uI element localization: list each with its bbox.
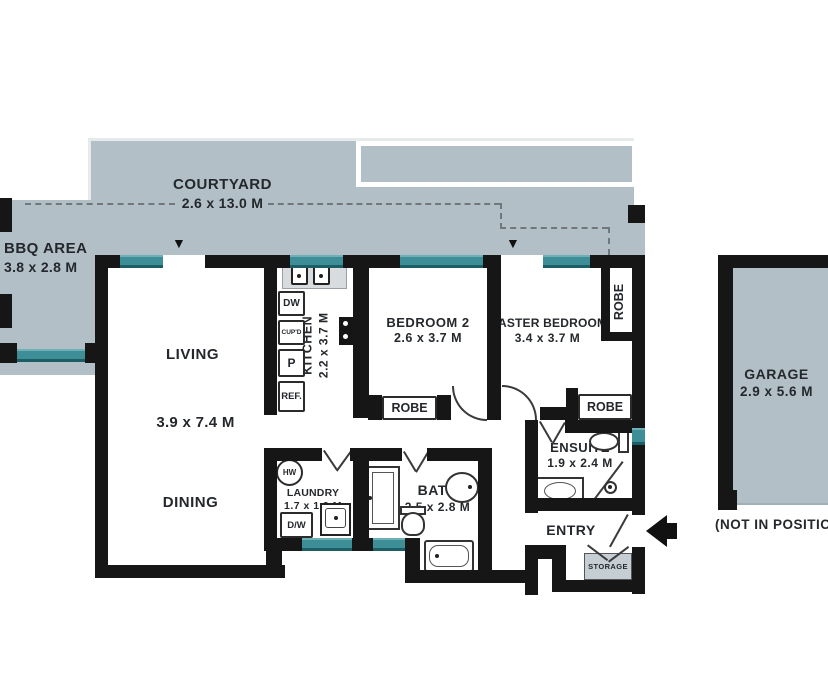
garage-wall <box>718 490 737 510</box>
wall-segment <box>566 388 578 420</box>
bath-shower-door <box>372 472 394 524</box>
wall-segment <box>632 255 645 428</box>
living-dining-dims: 3.9 x 7.4 M <box>118 414 273 431</box>
courtyard-planter <box>356 141 637 187</box>
bedroom2-door-arc <box>452 386 487 421</box>
wall-segment <box>525 545 558 559</box>
courtyard-dashed-line <box>608 227 610 255</box>
wall-segment <box>437 395 451 420</box>
wall-segment <box>628 205 645 223</box>
wall-segment <box>353 268 369 418</box>
bbq-dims: 3.8 x 2.8 M <box>4 259 94 277</box>
courtyard-dashed-line <box>500 203 502 229</box>
garage-label: GARAGE <box>724 366 828 384</box>
burner-icon <box>343 321 348 326</box>
master-rear-robe: ROBE <box>578 394 632 420</box>
laundry-dishwasher: D/W <box>280 512 313 538</box>
wall-segment <box>0 198 12 232</box>
kitchen-pantry: P <box>278 349 305 377</box>
wall-segment <box>264 458 277 551</box>
wall-segment <box>0 294 12 328</box>
master-rear-robe-label: ROBE <box>587 400 623 414</box>
garage-note: (NOT IN POSITION) <box>715 517 828 534</box>
kitchen-fridge-label: REF. <box>281 391 302 402</box>
wall-segment <box>95 255 108 578</box>
door-marker-icon: ▼ <box>506 236 520 250</box>
courtyard-label: COURTYARD <box>140 176 305 195</box>
wall-segment <box>601 268 610 338</box>
hot-water-unit: HW <box>276 459 303 486</box>
basin-tap-icon <box>468 485 472 489</box>
kitchen-fridge: REF. <box>278 381 305 412</box>
bedroom2-dims: 2.6 x 3.7 M <box>372 331 484 347</box>
bath-door-swing <box>403 451 417 472</box>
wall-segment <box>264 448 322 461</box>
wall-segment <box>85 343 95 363</box>
kitchen-cupboard: CUP'D <box>278 320 305 345</box>
living-label: LIVING <box>115 346 270 365</box>
wall-segment <box>205 255 290 268</box>
storage-label: STORAGE <box>588 562 628 571</box>
window-segment <box>543 255 590 268</box>
wall-segment <box>483 255 501 268</box>
bath-toilet-bowl <box>401 512 425 536</box>
wall-segment <box>369 448 402 461</box>
garage-dims: 2.9 x 5.6 M <box>724 384 828 401</box>
sink-drain-icon <box>319 274 323 278</box>
entry-arrow-icon <box>646 515 667 547</box>
door-marker-icon: ▼ <box>172 236 186 250</box>
wall-segment <box>552 580 645 592</box>
wall-segment <box>601 332 632 341</box>
courtyard-dashed-line <box>500 227 608 229</box>
wall-segment <box>427 448 478 461</box>
bedroom2-label-group: BEDROOM 2 2.6 x 3.7 M <box>372 315 484 347</box>
ensuite-toilet-bowl <box>589 432 619 451</box>
storage-box: STORAGE <box>584 553 632 580</box>
garage-wall <box>718 255 828 268</box>
wall-segment <box>282 538 302 551</box>
bbq-label-group: BBQ AREA 3.8 x 2.8 M <box>4 240 94 276</box>
wall-segment <box>0 343 17 363</box>
courtyard-label-group: COURTYARD 2.6 x 13.0 M <box>140 176 305 212</box>
kitchen-pantry-label: P <box>287 356 295 370</box>
entry-arrow-shaft <box>665 523 677 539</box>
wall-segment <box>352 538 373 551</box>
entry-label: ENTRY <box>536 522 606 540</box>
wall-segment <box>368 395 382 420</box>
laundry-label: LAUNDRY <box>282 487 344 500</box>
kitchen-cupboard-label: CUP'D <box>282 329 302 336</box>
dining-label: DINING <box>113 494 268 513</box>
wall-segment <box>405 570 535 583</box>
laundry-door-swing <box>323 450 338 470</box>
wall-segment <box>540 407 568 420</box>
master-side-robe-label: ROBE <box>612 284 626 320</box>
ensuite-dims: 1.9 x 2.4 M <box>534 456 626 471</box>
window-segment <box>302 538 352 551</box>
wall-segment <box>565 420 632 433</box>
window-segment <box>120 255 163 268</box>
wall-segment <box>95 565 285 578</box>
wall-segment <box>487 268 501 420</box>
hot-water-label: HW <box>283 468 296 477</box>
courtyard-dims: 2.6 x 13.0 M <box>140 195 305 213</box>
wall-segment <box>353 448 369 551</box>
laundry-dishwasher-label: D/W <box>287 520 305 531</box>
window-segment <box>17 349 85 362</box>
wall-segment <box>343 255 400 268</box>
wall-segment <box>478 448 492 583</box>
sink-drain-icon <box>334 516 338 520</box>
bedroom2-robe: ROBE <box>382 396 437 420</box>
garage-label-group: GARAGE 2.9 x 5.6 M <box>724 366 828 400</box>
bath-basin <box>445 472 479 503</box>
sink-drain-icon <box>297 274 301 278</box>
burner-icon <box>343 334 348 339</box>
shower-head-dot-icon <box>608 485 612 489</box>
window-segment <box>290 255 343 268</box>
wall-segment <box>525 498 645 511</box>
floor-plan: ▼ ▼ COURTYARD 2.6 x 13.0 M BBQ AREA 3.8 … <box>0 0 828 684</box>
master-door-arc <box>502 385 537 420</box>
window-segment <box>400 255 483 268</box>
bedroom2-label: BEDROOM 2 <box>372 315 484 331</box>
bathtub-tap-icon <box>435 554 439 558</box>
bbq-label: BBQ AREA <box>4 240 94 259</box>
window-segment <box>632 428 645 445</box>
kitchen-dishwasher: DW <box>278 291 305 316</box>
bedroom2-robe-label: ROBE <box>391 401 427 415</box>
kitchen-dims: 2.2 x 3.7 M <box>316 312 331 378</box>
kitchen-dishwasher-label: DW <box>283 298 300 309</box>
wall-segment <box>264 268 277 415</box>
entry-door-leaf <box>609 514 629 547</box>
window-segment <box>373 538 405 551</box>
